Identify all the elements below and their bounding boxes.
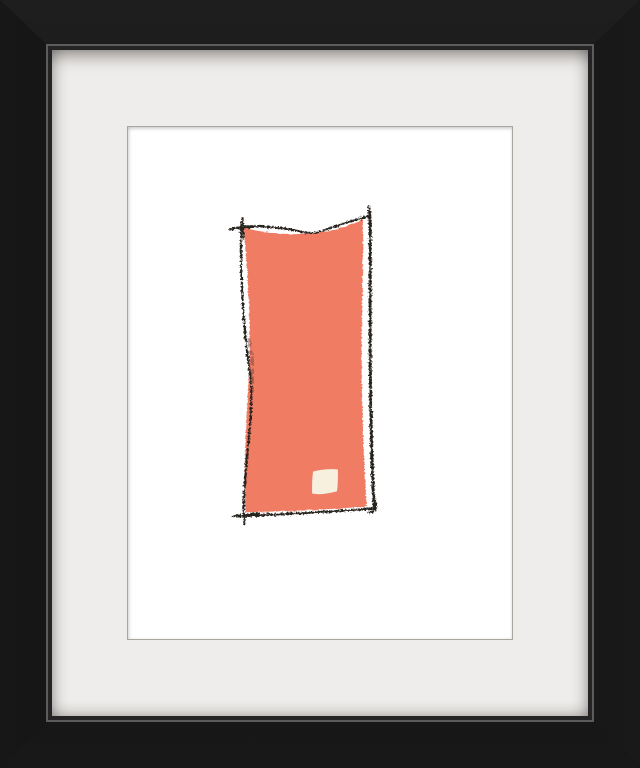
mat-opening	[127, 126, 513, 640]
cream-patch	[312, 469, 338, 494]
framed-art-photo	[0, 0, 640, 768]
coral-block	[243, 219, 366, 512]
charcoal-corner-hook-bottom-right	[369, 501, 376, 512]
artwork-canvas	[128, 127, 512, 639]
charcoal-right-line	[370, 212, 375, 512]
